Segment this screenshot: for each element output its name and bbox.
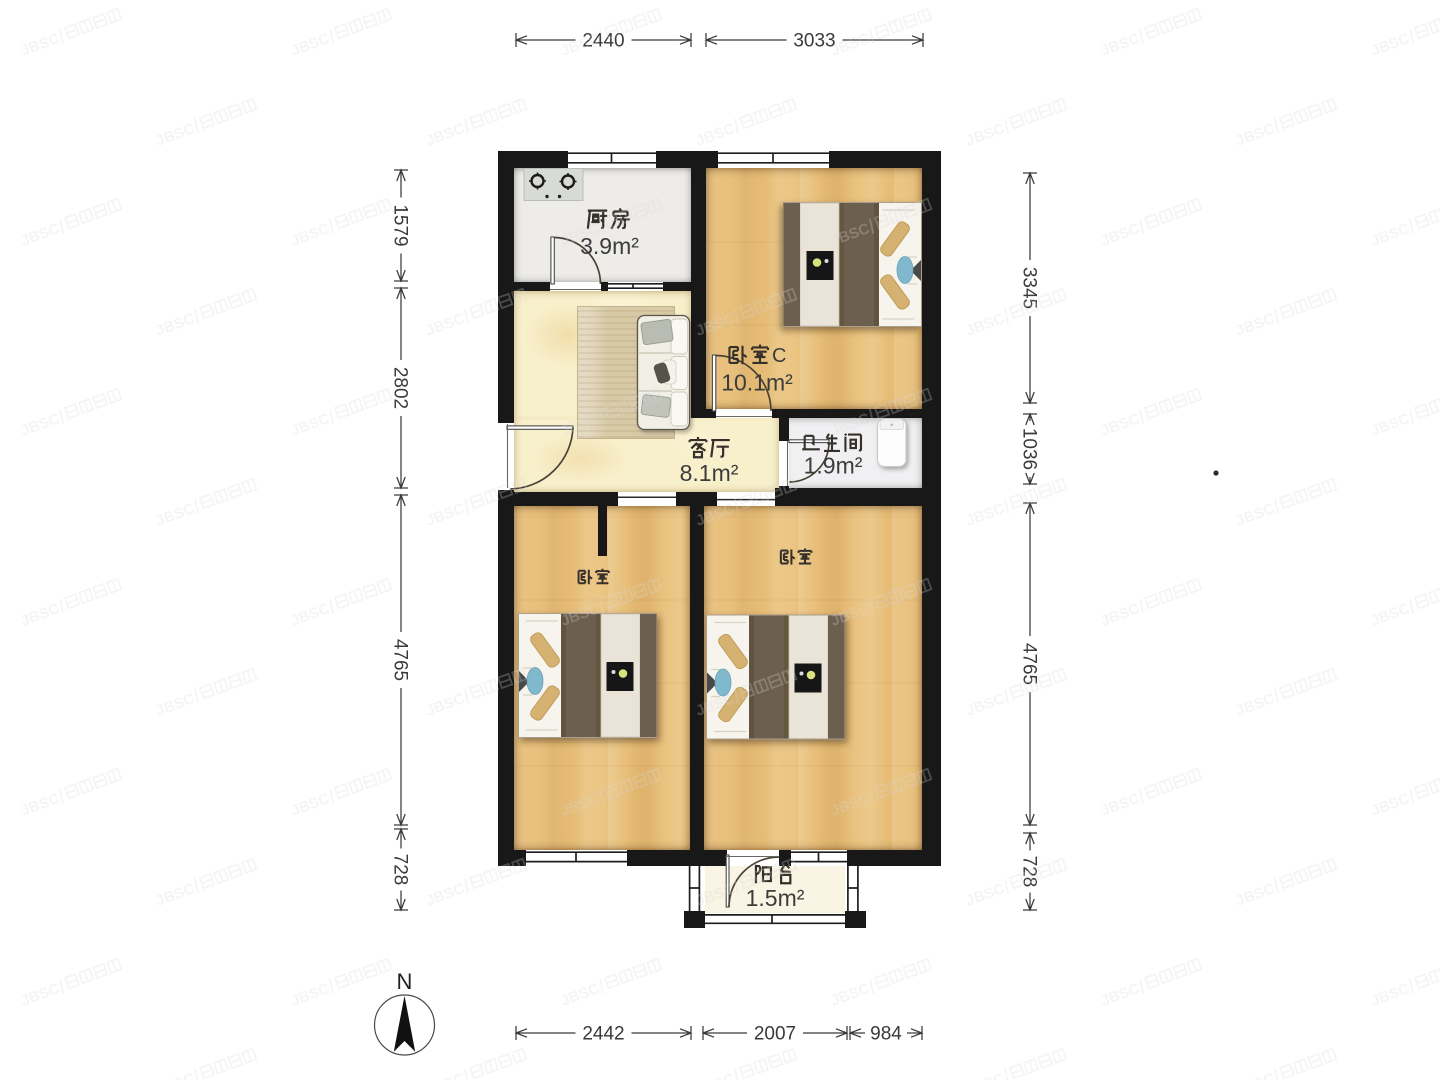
svg-text:N: N <box>397 969 413 994</box>
svg-text:4765: 4765 <box>1018 643 1039 685</box>
svg-text:2802: 2802 <box>389 367 410 409</box>
svg-text:728: 728 <box>389 854 410 886</box>
svg-text:2442: 2442 <box>582 1024 624 1045</box>
svg-text:10.1m²: 10.1m² <box>721 370 793 396</box>
svg-text:1036: 1036 <box>1018 428 1039 470</box>
svg-text:4765: 4765 <box>389 639 410 681</box>
svg-text:2007: 2007 <box>754 1024 796 1045</box>
svg-text:C: C <box>772 345 786 367</box>
svg-text:8.1m²: 8.1m² <box>680 460 739 486</box>
svg-text:1.5m²: 1.5m² <box>746 885 805 911</box>
svg-text:984: 984 <box>870 1024 902 1045</box>
svg-text:1579: 1579 <box>389 204 410 246</box>
svg-text:1.9m²: 1.9m² <box>804 453 863 479</box>
